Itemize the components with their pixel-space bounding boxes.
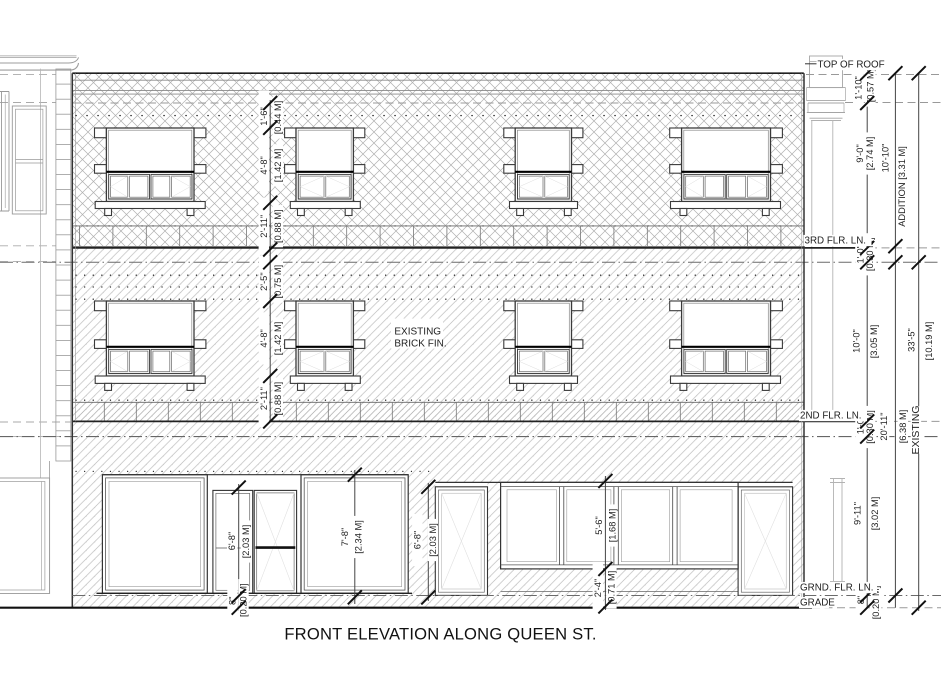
svg-text:6'-8": 6'-8" <box>412 531 422 550</box>
svg-text:10'-10": 10'-10" <box>881 144 891 173</box>
svg-text:[3.02 M]: [3.02 M] <box>870 497 880 531</box>
svg-text:2'-11": 2'-11" <box>259 215 269 238</box>
svg-text:[0.44 M]: [0.44 M] <box>273 101 283 135</box>
svg-text:20'-11": 20'-11" <box>879 412 889 440</box>
svg-text:[2.03 M]: [2.03 M] <box>241 525 251 559</box>
svg-text:2'-11": 2'-11" <box>259 387 269 410</box>
svg-text:[6.38 M]: [6.38 M] <box>898 410 908 444</box>
svg-text:33'-5": 33'-5" <box>907 328 917 352</box>
svg-text:[10.19 M]: [10.19 M] <box>924 322 934 361</box>
svg-text:2'-5": 2'-5" <box>259 272 269 291</box>
svg-text:TOP OF ROOF: TOP OF ROOF <box>818 60 885 71</box>
svg-text:ADDITION [3.31 M]: ADDITION [3.31 M] <box>897 146 907 227</box>
svg-text:GRND. FLR. LN.: GRND. FLR. LN. <box>800 583 874 594</box>
svg-text:[2.03 M]: [2.03 M] <box>428 523 438 557</box>
svg-text:[1.42 M]: [1.42 M] <box>273 322 283 356</box>
svg-text:BRICK FIN.: BRICK FIN. <box>394 339 446 350</box>
svg-text:[2.34 M]: [2.34 M] <box>354 520 364 554</box>
svg-text:[1.42 M]: [1.42 M] <box>273 149 283 183</box>
svg-text:10'-0": 10'-0" <box>852 329 862 353</box>
svg-text:[0.75 M]: [0.75 M] <box>273 265 283 299</box>
svg-text:9'-11": 9'-11" <box>853 502 863 525</box>
svg-text:EXISTING: EXISTING <box>910 405 922 454</box>
svg-text:3RD FLR. LN.: 3RD FLR. LN. <box>805 236 867 247</box>
svg-text:5'-6": 5'-6" <box>594 516 604 535</box>
svg-text:2ND FLR. LN.: 2ND FLR. LN. <box>800 411 862 422</box>
svg-text:2'-4": 2'-4" <box>593 579 603 598</box>
svg-text:4'-8": 4'-8" <box>259 156 269 175</box>
svg-text:4'-8": 4'-8" <box>259 329 269 348</box>
svg-text:7'-8": 7'-8" <box>340 528 350 547</box>
svg-text:[0.88 M]: [0.88 M] <box>273 209 283 243</box>
svg-text:[2.74 M]: [2.74 M] <box>865 137 875 171</box>
svg-text:6'-8": 6'-8" <box>227 532 237 551</box>
svg-text:FRONT ELEVATION ALONG QUEEN ST: FRONT ELEVATION ALONG QUEEN ST. <box>284 625 596 644</box>
svg-text:[1.68 M]: [1.68 M] <box>607 509 617 543</box>
svg-text:9'-0": 9'-0" <box>855 144 865 163</box>
svg-text:[0.88 M]: [0.88 M] <box>273 382 283 416</box>
svg-text:GRADE: GRADE <box>800 598 835 609</box>
svg-text:[3.05 M]: [3.05 M] <box>869 325 879 359</box>
svg-text:EXISTING: EXISTING <box>394 327 441 338</box>
svg-text:[0.20 M]: [0.20 M] <box>239 583 249 617</box>
